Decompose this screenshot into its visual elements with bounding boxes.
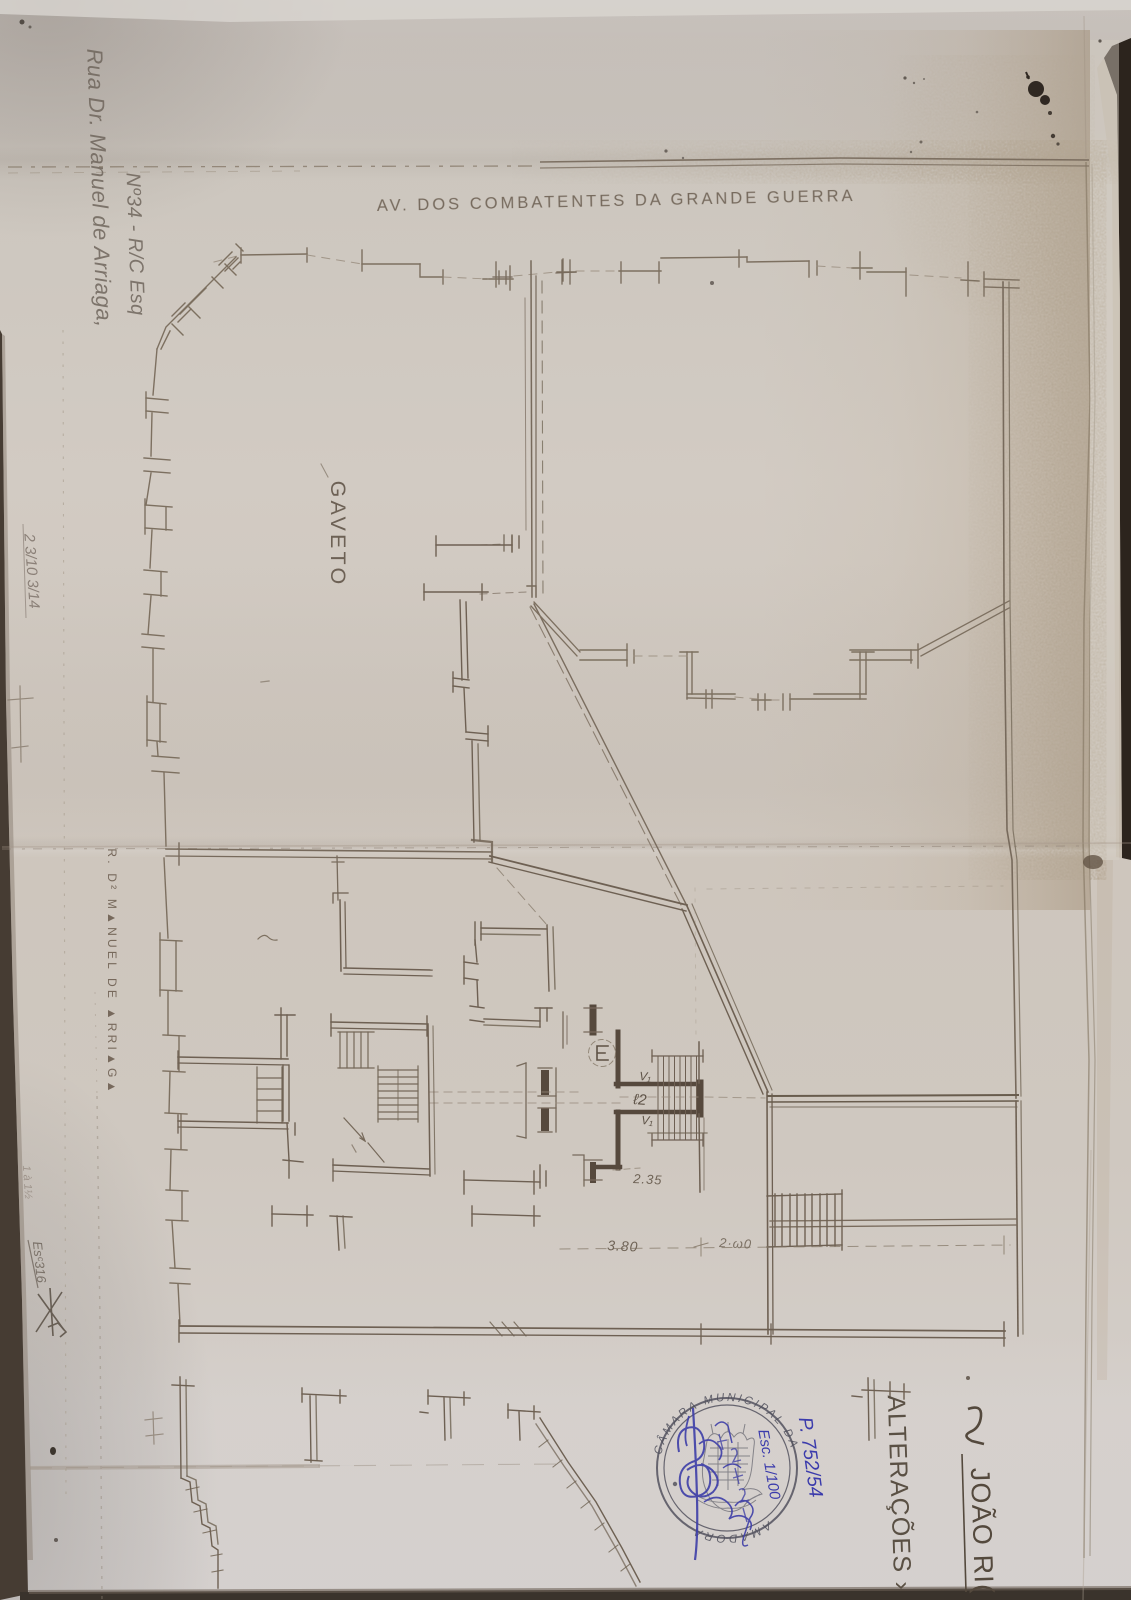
svg-text:3.80: 3.80 <box>607 1237 639 1255</box>
svg-text:ℓ2: ℓ2 <box>632 1091 648 1109</box>
svg-text:Nº34 - R/C Esq: Nº34 - R/C Esq <box>122 172 149 316</box>
svg-text:R. D² M▲NUEL DE ▲RRI▲G▲: R. D² M▲NUEL DE ▲RRI▲G▲ <box>105 848 119 1095</box>
svg-text:GAVETO: GAVETO <box>326 481 350 588</box>
svg-text:Rua Dr. Manuel de Arriaga,: Rua Dr. Manuel de Arriaga, <box>82 48 117 328</box>
svg-text:P. 752/54: P. 752/54 <box>794 1416 827 1499</box>
svg-text:2·ω0: 2·ω0 <box>718 1235 753 1252</box>
svg-text:JOÃO RI(: JOÃO RI( <box>965 1467 1000 1595</box>
svg-text:2.35: 2.35 <box>632 1171 663 1188</box>
svg-text:V₁: V₁ <box>639 1069 652 1084</box>
svg-text:ALTERAÇÕES ›: ALTERAÇÕES › <box>882 1395 918 1592</box>
svg-text:V₁: V₁ <box>641 1113 654 1128</box>
svg-text:1 à 1½: 1 à 1½ <box>20 1165 34 1199</box>
svg-text:AV. DOS COMBATENTES DA GRANDE: AV. DOS COMBATENTES DA GRANDE GUERRA <box>377 187 855 215</box>
